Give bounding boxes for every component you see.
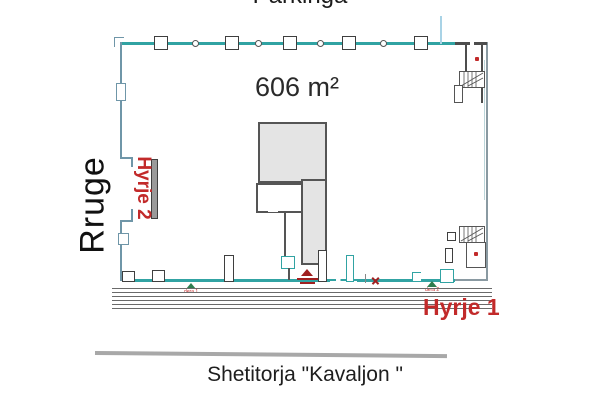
small-square bbox=[447, 232, 456, 241]
wall-column bbox=[342, 36, 356, 50]
wall-right bbox=[486, 42, 488, 281]
wall-column bbox=[154, 36, 168, 50]
wall-bottom-c bbox=[455, 279, 487, 281]
pilaster bbox=[224, 255, 234, 282]
core-shaft-wall bbox=[284, 213, 286, 257]
area-label: 606 m² bbox=[255, 72, 339, 103]
walkway-line bbox=[112, 292, 492, 293]
stairwell-top-wall-h1 bbox=[455, 42, 470, 45]
column bbox=[152, 270, 165, 282]
wall-column bbox=[414, 36, 428, 50]
core-block-top bbox=[258, 122, 327, 183]
wall-joint-circle bbox=[192, 40, 199, 47]
core-room bbox=[256, 183, 303, 213]
wall-corner-step bbox=[114, 37, 124, 47]
street-left-label: Rruge bbox=[74, 156, 113, 254]
wall-joint-circle bbox=[255, 40, 262, 47]
wall-joint-circle bbox=[317, 40, 324, 47]
stairwell-top-wall-v1 bbox=[465, 45, 467, 72]
entrance-box bbox=[440, 269, 454, 283]
core-bottom-stem bbox=[288, 268, 290, 280]
small-door bbox=[445, 248, 453, 263]
guide-line bbox=[440, 16, 442, 44]
marker-dot bbox=[474, 252, 478, 256]
wall-column bbox=[283, 36, 297, 50]
window-marker bbox=[118, 233, 129, 245]
wall-step bbox=[412, 272, 421, 281]
cross-marker-tick bbox=[365, 274, 366, 283]
staircase-icon bbox=[459, 226, 485, 243]
stairwell-top-door bbox=[454, 85, 463, 103]
marker-dot bbox=[475, 57, 479, 61]
wall-joint-circle bbox=[380, 40, 387, 47]
floorplan-canvas: Parkinga Hyrje 2 Rruge bbox=[0, 0, 600, 400]
separator-bar bbox=[95, 351, 447, 358]
window-marker bbox=[116, 83, 126, 101]
street-bottom-label: Shetitorja "Kavaljon " bbox=[207, 363, 403, 387]
core-room-door-gap bbox=[268, 209, 278, 212]
pilaster bbox=[346, 255, 354, 282]
red-caption-bar bbox=[300, 282, 315, 284]
walkway-line bbox=[112, 288, 492, 289]
red-caption-bar bbox=[297, 278, 318, 280]
pilaster bbox=[318, 250, 327, 282]
wall-column bbox=[225, 36, 239, 50]
entrance1-label: Hyrje 1 bbox=[423, 294, 500, 321]
main-entrance-triangle-icon bbox=[301, 269, 313, 276]
street-top-label: Parkinga bbox=[253, 0, 348, 10]
column bbox=[122, 271, 135, 282]
cross-marker-icon bbox=[371, 276, 380, 285]
entrance2-label: Hyrje 2 bbox=[132, 156, 154, 219]
